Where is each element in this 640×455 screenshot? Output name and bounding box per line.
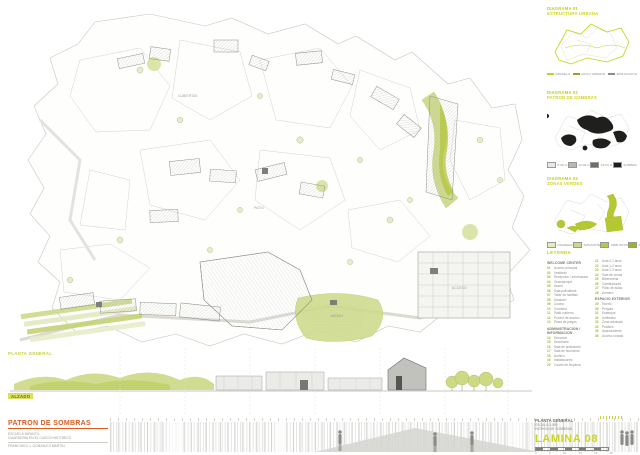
legend-swatch: [600, 242, 609, 248]
legend-item: 28Arenero: [595, 291, 639, 296]
panel-legend-row: PRADERATAPIZANTEARBUSTOSARBOLADO: [547, 242, 637, 248]
plan-annotation: ACCESO: [452, 286, 467, 290]
legend-column: 21Aula 0-1 anos22Aula 1-2 anos23Aula 2-3…: [595, 259, 639, 367]
legend-item-label: Arenero: [602, 291, 613, 296]
plan-title-label: PLANTA GENERAL: [8, 351, 52, 356]
panel-green-areas: DIAGRAMA 03 ZONAS VERDES PRADERATAPIZANT…: [547, 176, 637, 248]
legend-swatch: [568, 162, 577, 168]
legend-swatch-label: EDIFICACION: [617, 72, 637, 76]
legend-item: 36Acceso rodado: [595, 334, 639, 339]
urban-structure-diagram: [547, 18, 635, 70]
legend-header: LEYENDA: [547, 250, 571, 255]
drawing-sheet: CUBIERTAS PATIO JARDIN ACCESO PLANTA GEN…: [0, 0, 640, 452]
panel-legend-item: PARCELA: [547, 72, 570, 76]
title-block-line: GUARDERIA EN EL CASCO HISTORICO: [8, 436, 108, 441]
legend-swatch-label: 8:00 H: [558, 163, 567, 167]
panel-legend-item: ARBOLADO: [628, 242, 640, 248]
legend-section-header: WELCOME CENTER: [547, 261, 591, 265]
info-block: PLANTA GENERAL ESCALA 1:500 PATRON DE SO…: [535, 419, 635, 455]
green-areas-diagram: [547, 188, 635, 240]
sheet-number: LAMINA 08: [535, 433, 635, 445]
legend-swatch-label: 12:00 H: [578, 163, 589, 167]
legend-swatch-label: VACIO URBANO: [581, 72, 605, 76]
legend-swatch: [573, 73, 580, 74]
scale-bar-ticks: [535, 447, 609, 451]
plan-annotation: JARDIN: [330, 314, 343, 318]
legend-swatch: [547, 162, 556, 168]
plan-annotation: PATIO: [254, 206, 264, 210]
panel-urban-structure: DIAGRAMA 01 ESTRUCTURA URBANA PARCELAVAC…: [547, 6, 637, 76]
legend-item-label: Plaza de juegos: [554, 320, 577, 325]
legend-item: 13Plaza de juegos: [547, 320, 591, 325]
legend-swatch-label: 16:00 H: [601, 163, 612, 167]
legend-swatch: [547, 242, 556, 248]
panel-legend-item: EDIFICACION: [608, 72, 637, 76]
panel-legend-row: 8:00 H12:00 H16:00 HSOMBRA: [547, 162, 637, 168]
legend-swatch: [608, 73, 615, 74]
scale-bar-segment: [550, 448, 557, 450]
legend-item-label: Acceso rodado: [602, 334, 623, 339]
panel-legend-item: PRADERA: [547, 242, 573, 248]
site-plan-drawing: [0, 0, 545, 415]
elevation-label-chip: ALZADO: [8, 393, 33, 399]
panel-title: DIAGRAMA 01 ESTRUCTURA URBANA: [547, 6, 637, 16]
scale-bar-segment: [601, 448, 608, 450]
title-block-line: FRANCISCO J. GONZALEZ MARTIN: [8, 442, 108, 449]
legend-section-header: ADMINISTRACION / INFORMACION: [547, 327, 591, 335]
legend: WELCOME CENTER01Acceso principal02Vestib…: [547, 259, 639, 367]
scale-bar-segment: [536, 448, 543, 450]
legend-item-number: 36: [595, 334, 600, 339]
elevation-strip: [10, 358, 532, 391]
legend-swatch-label: PARCELA: [556, 72, 570, 76]
scale-bar-segment: [579, 448, 586, 450]
panel-legend-item: SOMBRA: [613, 162, 637, 168]
legend-section-header: ESPACIO EXTERIOR: [595, 297, 639, 301]
legend-swatch-label: SOMBRA: [623, 163, 637, 167]
scale-bar-segment: [572, 448, 579, 450]
panel-title-line2: PATRON DE SOMBRAS: [547, 95, 637, 100]
panel-shadow-pattern: DIAGRAMA 02 PATRON DE SOMBRAS 8:00 H12:0…: [547, 90, 637, 168]
panel-legend-item: 8:00 H: [547, 162, 567, 168]
title-block: PATRON DE SOMBRAS ESCUELA INFANTIL GUARD…: [8, 420, 108, 448]
panel-title-line2: ZONAS VERDES: [547, 181, 637, 186]
legend-column: WELCOME CENTER01Acceso principal02Vestib…: [547, 259, 591, 367]
scale-bar-segment: [543, 448, 550, 450]
panel-legend-item: 16:00 H: [590, 162, 612, 168]
legend-item-number: 28: [595, 291, 600, 296]
scale-bar-segment: [594, 448, 601, 450]
panel-legend-item: ARBUSTOS: [600, 242, 628, 248]
legend-swatch: [547, 73, 554, 74]
legend-item-number: 13: [547, 320, 552, 325]
legend-swatch: [613, 162, 622, 168]
legend-item-label: Cuarto de limpieza: [554, 363, 581, 368]
plan-annotation: CUBIERTAS: [178, 94, 198, 98]
panel-title: DIAGRAMA 02 PATRON DE SOMBRAS: [547, 90, 637, 100]
legend-item-number: 20: [547, 363, 552, 368]
legend-item: 20Cuarto de limpieza: [547, 363, 591, 368]
scale-bar-segment: [586, 448, 593, 450]
drawing-subject: PATRON DE SOMBRAS: [535, 427, 635, 431]
panel-legend-item: 12:00 H: [568, 162, 590, 168]
panel-title-line2: ESTRUCTURA URBANA: [547, 11, 637, 16]
scale-bar-segment: [565, 448, 572, 450]
panel-legend-row: PARCELAVACIO URBANOEDIFICACION: [547, 72, 637, 76]
legend-swatch: [590, 162, 599, 168]
shadow-pattern-diagram: [547, 102, 635, 160]
scale-bar-segment: [558, 448, 565, 450]
panel-legend-item: TAPIZANTE: [573, 242, 601, 248]
scale-bar: 0510152025: [535, 447, 615, 455]
sheet-title: PATRON DE SOMBRAS: [8, 420, 108, 429]
panel-title: DIAGRAMA 03 ZONAS VERDES: [547, 176, 637, 186]
legend-swatch: [628, 242, 637, 248]
legend-swatch-label: TAPIZANTE: [583, 243, 600, 247]
legend-swatch-label: PRADERA: [558, 243, 573, 247]
legend-swatch: [573, 242, 582, 248]
legend-swatch-label: ARBUSTOS: [611, 243, 628, 247]
panel-legend-item: VACIO URBANO: [573, 72, 605, 76]
